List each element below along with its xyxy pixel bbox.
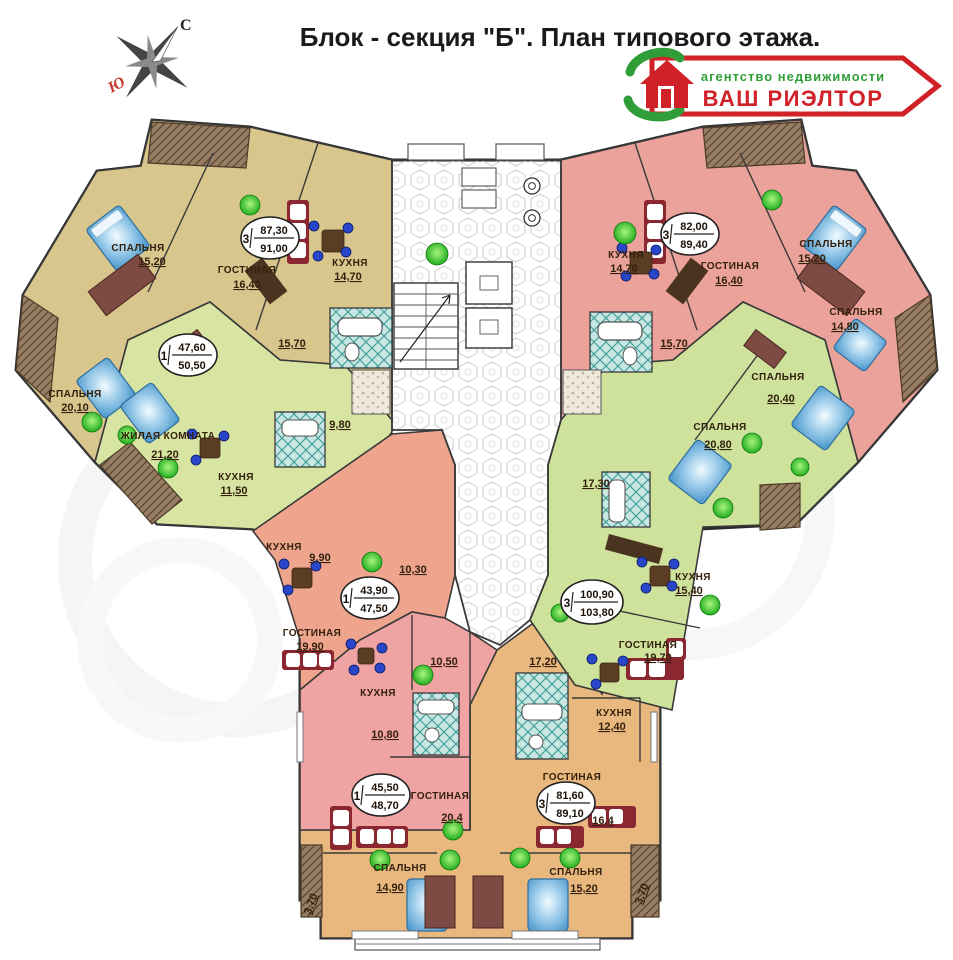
room-area: 16,40 — [715, 275, 743, 287]
staircase — [394, 283, 458, 369]
compass-north-label: С — [180, 17, 192, 34]
svg-text:89,10: 89,10 — [556, 808, 584, 820]
area-oval-right-top: 3 82,00 89,40 — [661, 213, 719, 255]
balcony-right-mid — [760, 483, 800, 530]
room-label: КУХНЯ — [266, 542, 302, 553]
toilet — [623, 347, 637, 365]
compass-south-label: Ю — [104, 74, 128, 97]
room-area: 9,90 — [309, 552, 330, 564]
room-area: 20,10 — [61, 402, 89, 414]
room-area: 20,4 — [441, 812, 463, 824]
svg-text:1: 1 — [161, 349, 168, 363]
svg-text:3: 3 — [564, 596, 571, 610]
room-area: 10,80 — [371, 729, 399, 741]
hall-area: 9,80 — [329, 419, 350, 431]
room-area: 14,90 — [376, 882, 404, 894]
room-label: ГОСТИНАЯ — [543, 772, 601, 783]
floor-plan-svg: Блок - секция "Б". План типового этажа. … — [0, 0, 953, 960]
room-label: СПАЛЬНЯ — [549, 867, 602, 878]
room-area: 20,40 — [767, 393, 795, 405]
room-label: ГОСТИНАЯ — [619, 640, 677, 651]
room-label: СПАЛЬНЯ — [48, 389, 101, 400]
toilet — [345, 343, 359, 361]
svg-text:47,60: 47,60 — [178, 342, 206, 354]
svg-text:100,90: 100,90 — [580, 589, 614, 601]
svg-text:91,00: 91,00 — [260, 243, 288, 255]
svg-text:48,70: 48,70 — [371, 800, 399, 812]
room-area: 12,40 — [598, 721, 626, 733]
room-label: ГОСТИНАЯ — [218, 265, 276, 276]
room-label: ГОСТИНАЯ — [283, 628, 341, 639]
svg-text:3: 3 — [663, 228, 670, 242]
room-label: КУХНЯ — [608, 250, 644, 261]
area-oval-left-top: 3 87,30 91,00 — [241, 217, 299, 259]
svg-text:3: 3 — [539, 797, 546, 811]
balcony-bottom-right — [631, 845, 659, 917]
room-label: СПАЛЬНЯ — [799, 239, 852, 250]
hall-area: 10,50 — [430, 656, 458, 668]
hall-area: 15,70 — [660, 338, 688, 350]
room-label: СПАЛЬНЯ — [693, 422, 746, 433]
bathtub — [609, 480, 625, 522]
room-area: 16,4 — [592, 815, 614, 827]
room-area: 11,50 — [221, 485, 248, 497]
area-oval-right-mid: 3 100,90 103,80 — [561, 580, 623, 624]
hall-area: 17,20 — [529, 656, 557, 668]
room-label: ГОСТИНАЯ — [701, 261, 759, 272]
agency-logo: агентство недвижимости ВАШ РИЭЛТОР — [628, 52, 938, 117]
room-label: КУХНЯ — [332, 258, 368, 269]
room-label: ЖИЛАЯ КОМНАТА — [120, 431, 216, 442]
room-label: КУХНЯ — [360, 688, 396, 699]
svg-text:1: 1 — [343, 592, 350, 606]
room-area: 21,20 — [151, 449, 179, 461]
room-label: КУХНЯ — [675, 572, 711, 583]
svg-text:1: 1 — [354, 789, 361, 803]
room-area: 14,70 — [334, 271, 362, 283]
area-oval-left-mid: 1 47,60 50,50 — [159, 334, 217, 376]
balcony-left-wing-top — [148, 122, 250, 168]
room-label: КУХНЯ — [218, 472, 254, 483]
room-area: 14,80 — [831, 321, 859, 333]
bathtub — [598, 322, 642, 340]
hall-area: 15,70 — [278, 338, 306, 350]
room-area: 15,20 — [570, 883, 598, 895]
room-area: 20,80 — [704, 439, 732, 451]
svg-text:87,30: 87,30 — [260, 225, 288, 237]
hall-area: 10,30 — [399, 564, 427, 576]
room-area: 19,70 — [644, 652, 672, 664]
room-area: 16,40 — [233, 279, 261, 291]
svg-text:82,00: 82,00 — [680, 221, 708, 233]
svg-text:50,50: 50,50 — [178, 360, 206, 372]
room-area: 15,20 — [138, 256, 166, 268]
svg-text:89,40: 89,40 — [680, 239, 708, 251]
svg-text:3: 3 — [243, 232, 250, 246]
room-area: 15,40 — [675, 585, 703, 597]
room-area: 19,90 — [296, 641, 324, 653]
logo-tagline: агентство недвижимости — [701, 69, 885, 84]
svg-text:43,90: 43,90 — [360, 585, 388, 597]
bathtub — [282, 420, 318, 436]
compass-rose: С Ю — [91, 1, 214, 124]
hall-area: 17,30 — [582, 478, 610, 490]
room-area: 14,70 — [610, 263, 638, 275]
svg-text:81,60: 81,60 — [556, 790, 584, 802]
area-oval-bottom-left: 1 45,50 48,70 — [352, 774, 410, 816]
balcony-right-wing-top — [703, 122, 805, 168]
room-label: ГОСТИНАЯ — [411, 791, 469, 802]
svg-text:47,50: 47,50 — [360, 603, 388, 615]
room-label: СПАЛЬНЯ — [829, 307, 882, 318]
room-label: СПАЛЬНЯ — [111, 243, 164, 254]
bathtub — [522, 704, 562, 720]
bathtub — [418, 700, 454, 714]
room-label: СПАЛЬНЯ — [373, 863, 426, 874]
sofa — [282, 650, 334, 670]
page-title: Блок - секция "Б". План типового этажа. — [300, 22, 821, 52]
room-label: КУХНЯ — [596, 708, 632, 719]
room-area: 15,20 — [798, 253, 826, 265]
svg-text:103,80: 103,80 — [580, 607, 614, 619]
logo-brand: ВАШ РИЭЛТОР — [703, 86, 884, 111]
area-oval-bottom-right: 3 81,60 89,10 — [537, 782, 595, 824]
bathtub — [338, 318, 382, 336]
area-oval-center-left: 1 43,90 47,50 — [341, 577, 399, 619]
svg-text:45,50: 45,50 — [371, 782, 399, 794]
room-label: СПАЛЬНЯ — [751, 372, 804, 383]
